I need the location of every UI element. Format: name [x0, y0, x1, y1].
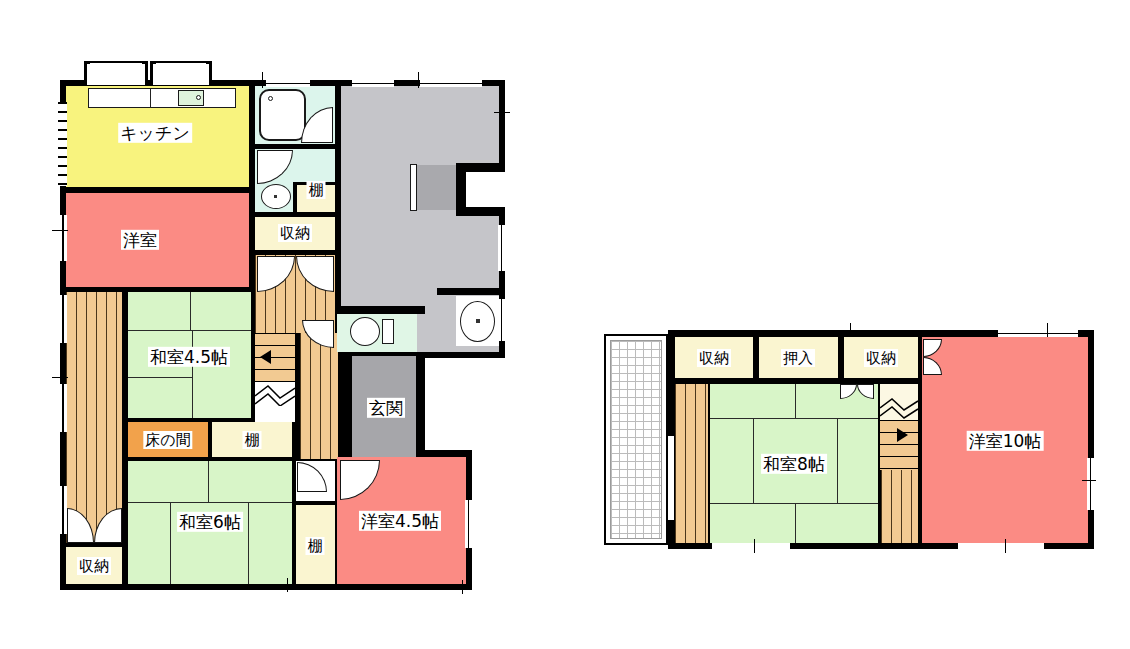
- window-symbol: [58, 102, 67, 186]
- tatami-line: [128, 377, 192, 378]
- balcony: [610, 340, 662, 539]
- floor-plan: キッチン 洋室 和室4.5帖 床の間 棚 和室6帖 収納 棚 洋室4.5帖 玄関…: [0, 0, 1130, 649]
- tick-mark: [1082, 480, 1096, 481]
- kitchen-counter: [88, 88, 236, 108]
- kitchen-counter: [150, 88, 151, 108]
- window-symbol: [266, 80, 310, 87]
- corridor-strip-2f: [675, 384, 708, 543]
- tick-mark: [462, 580, 463, 594]
- tatami-line: [170, 502, 171, 584]
- tick-mark: [52, 377, 68, 378]
- corridor-strip: [300, 333, 338, 459]
- tatami-line: [128, 502, 292, 503]
- room-label-closet-top: 収納: [278, 224, 312, 242]
- room-label-closet-bl: 収納: [77, 557, 111, 575]
- toilet-room: [337, 314, 417, 352]
- wall-segment: [335, 306, 425, 314]
- washbasin-icon: [274, 195, 277, 198]
- room-label-shelf-bottom: 棚: [306, 537, 325, 555]
- window-symbol: [998, 330, 1078, 337]
- tatami-line: [795, 503, 796, 543]
- alcove-dark: [417, 165, 456, 210]
- room-label-western-10: 洋室10帖: [967, 431, 1044, 451]
- tick-mark: [850, 323, 851, 337]
- bathtub-icon: [259, 89, 306, 141]
- wall-segment: [456, 207, 505, 216]
- tick-mark: [418, 72, 419, 88]
- toilet-icon: [350, 317, 380, 346]
- window-symbol: [156, 63, 206, 65]
- window-symbol: [59, 295, 67, 343]
- sliding-door-symbol: [410, 164, 417, 211]
- tick-mark: [287, 578, 288, 592]
- stairs-1f: [255, 382, 295, 422]
- tatami-line: [190, 292, 191, 330]
- tatami-line: [208, 461, 209, 502]
- kitchen-sink-icon: [196, 95, 201, 100]
- stairs-direction-arrow: [897, 428, 908, 442]
- tick-mark: [52, 230, 68, 231]
- stairs-2f: [881, 470, 918, 543]
- room-label-western-1f: 洋室: [121, 230, 159, 250]
- tatami-line: [837, 418, 838, 503]
- room-label-japanese-45: 和室4.5帖: [148, 347, 230, 367]
- window-symbol: [352, 80, 394, 87]
- window-symbol: [59, 384, 67, 432]
- window-symbol: [420, 80, 482, 87]
- tatami-line: [710, 503, 878, 504]
- bathtub-icon: [268, 96, 273, 101]
- tatami-line: [795, 384, 796, 418]
- stairs-2f: [880, 384, 918, 420]
- room-label-entrance: 玄関: [367, 398, 405, 418]
- tick-mark: [1047, 323, 1048, 337]
- tick-mark: [262, 72, 263, 88]
- window-symbol: [59, 215, 67, 261]
- room-label-shelf-top: 棚: [307, 181, 326, 199]
- break-line: [880, 396, 918, 420]
- tatami-line: [128, 330, 251, 331]
- room-label-oshiire: 押入: [781, 349, 815, 367]
- window-symbol: [958, 543, 1044, 549]
- wall-segment: [437, 288, 499, 295]
- window-symbol: [498, 225, 505, 271]
- tatami-line: [710, 418, 878, 419]
- window-symbol: [59, 486, 67, 534]
- window-symbol: [498, 299, 505, 341]
- balcony: [604, 334, 668, 545]
- toilet-icon: [382, 319, 394, 344]
- bay-window: [150, 61, 212, 88]
- room-label-kitchen: キッチン: [118, 123, 192, 143]
- room-label-tokonoma: 床の間: [143, 431, 192, 449]
- bay-window: [84, 61, 148, 88]
- stairs-direction-arrow: [260, 350, 271, 364]
- room-label-shelf-middle: 棚: [243, 431, 262, 449]
- tatami-line: [248, 502, 249, 584]
- window-symbol: [90, 63, 142, 65]
- room-label-western-45: 洋室4.5帖: [359, 511, 441, 531]
- sink-counter-icon: [476, 319, 480, 323]
- window-symbol: [1087, 458, 1094, 510]
- tick-mark: [754, 539, 755, 553]
- tick-mark: [1005, 539, 1006, 553]
- room-label-japanese-8: 和室8帖: [761, 454, 827, 474]
- window-symbol: [668, 436, 674, 520]
- room-label-closet-2f-left: 収納: [697, 349, 731, 367]
- tatami-line: [192, 330, 193, 418]
- notch: [466, 172, 512, 207]
- window-symbol: [712, 543, 790, 549]
- tatami-line: [753, 418, 754, 503]
- room-label-japanese-6: 和室6帖: [177, 512, 243, 532]
- engawa-corridor: [66, 292, 122, 543]
- room-label-closet-2f-right: 収納: [864, 349, 898, 367]
- tick-mark: [494, 112, 510, 113]
- break-line: [255, 382, 295, 406]
- window-symbol: [465, 500, 472, 548]
